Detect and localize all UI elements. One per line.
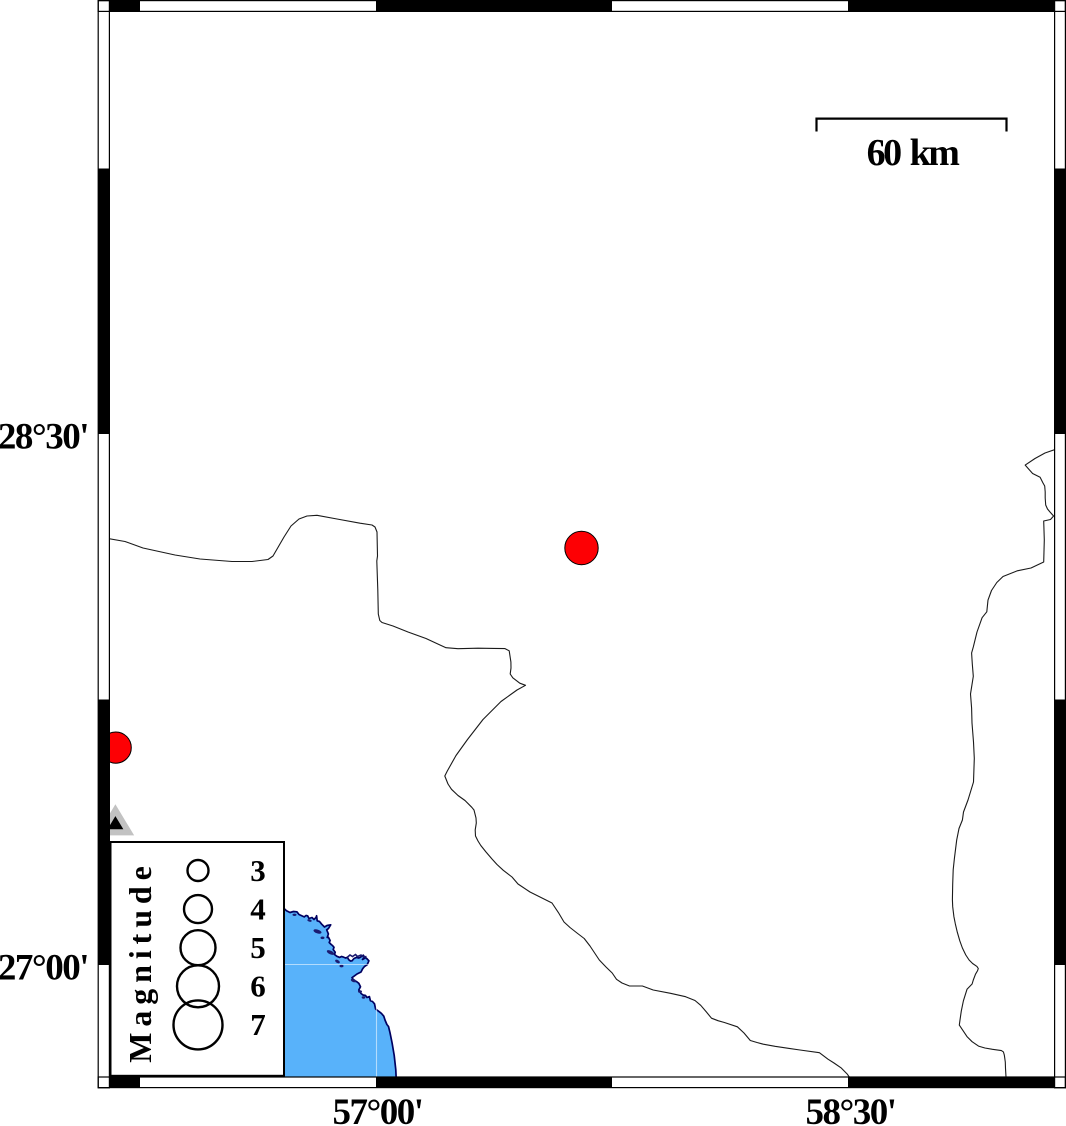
svg-text:Magnitude: Magnitude <box>122 860 158 1062</box>
svg-text:7: 7 <box>250 1007 266 1042</box>
svg-text:57°00': 57°00' <box>332 1092 422 1126</box>
svg-text:60 km: 60 km <box>867 132 960 174</box>
svg-text:3: 3 <box>250 853 266 888</box>
svg-text:5: 5 <box>250 930 266 965</box>
svg-text:28°30': 28°30' <box>0 417 88 458</box>
svg-text:4: 4 <box>250 892 266 927</box>
svg-text:58°30': 58°30' <box>805 1092 895 1126</box>
svg-text:6: 6 <box>250 969 266 1004</box>
svg-text:27°00': 27°00' <box>0 948 88 989</box>
